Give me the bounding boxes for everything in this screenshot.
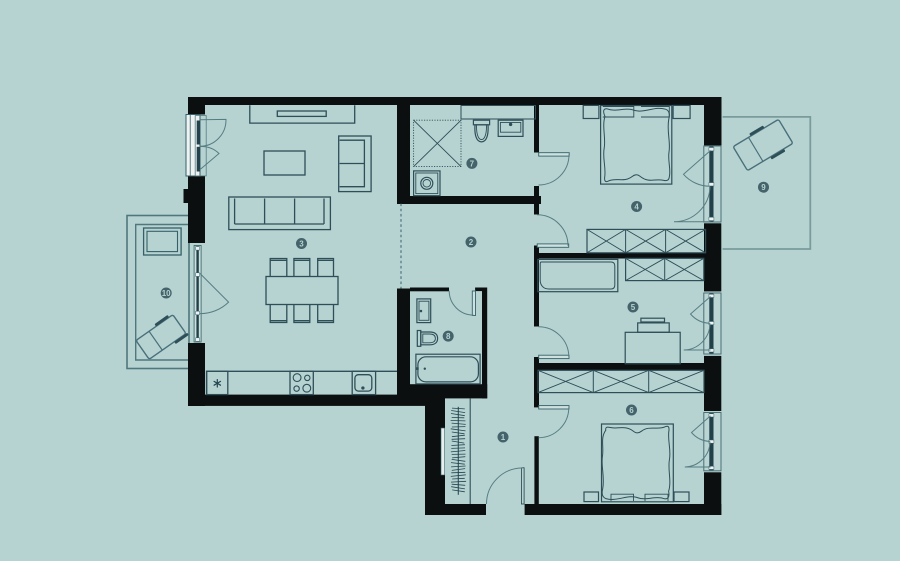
svg-text:7: 7: [470, 159, 475, 168]
svg-text:1: 1: [501, 433, 506, 442]
svg-text:5: 5: [631, 303, 636, 312]
svg-text:10: 10: [162, 289, 171, 298]
svg-text:4: 4: [634, 203, 639, 212]
svg-text:2: 2: [469, 238, 474, 247]
svg-text:6: 6: [629, 406, 634, 415]
svg-text:3: 3: [299, 240, 304, 249]
svg-text:8: 8: [446, 332, 451, 341]
svg-text:9: 9: [761, 183, 766, 192]
